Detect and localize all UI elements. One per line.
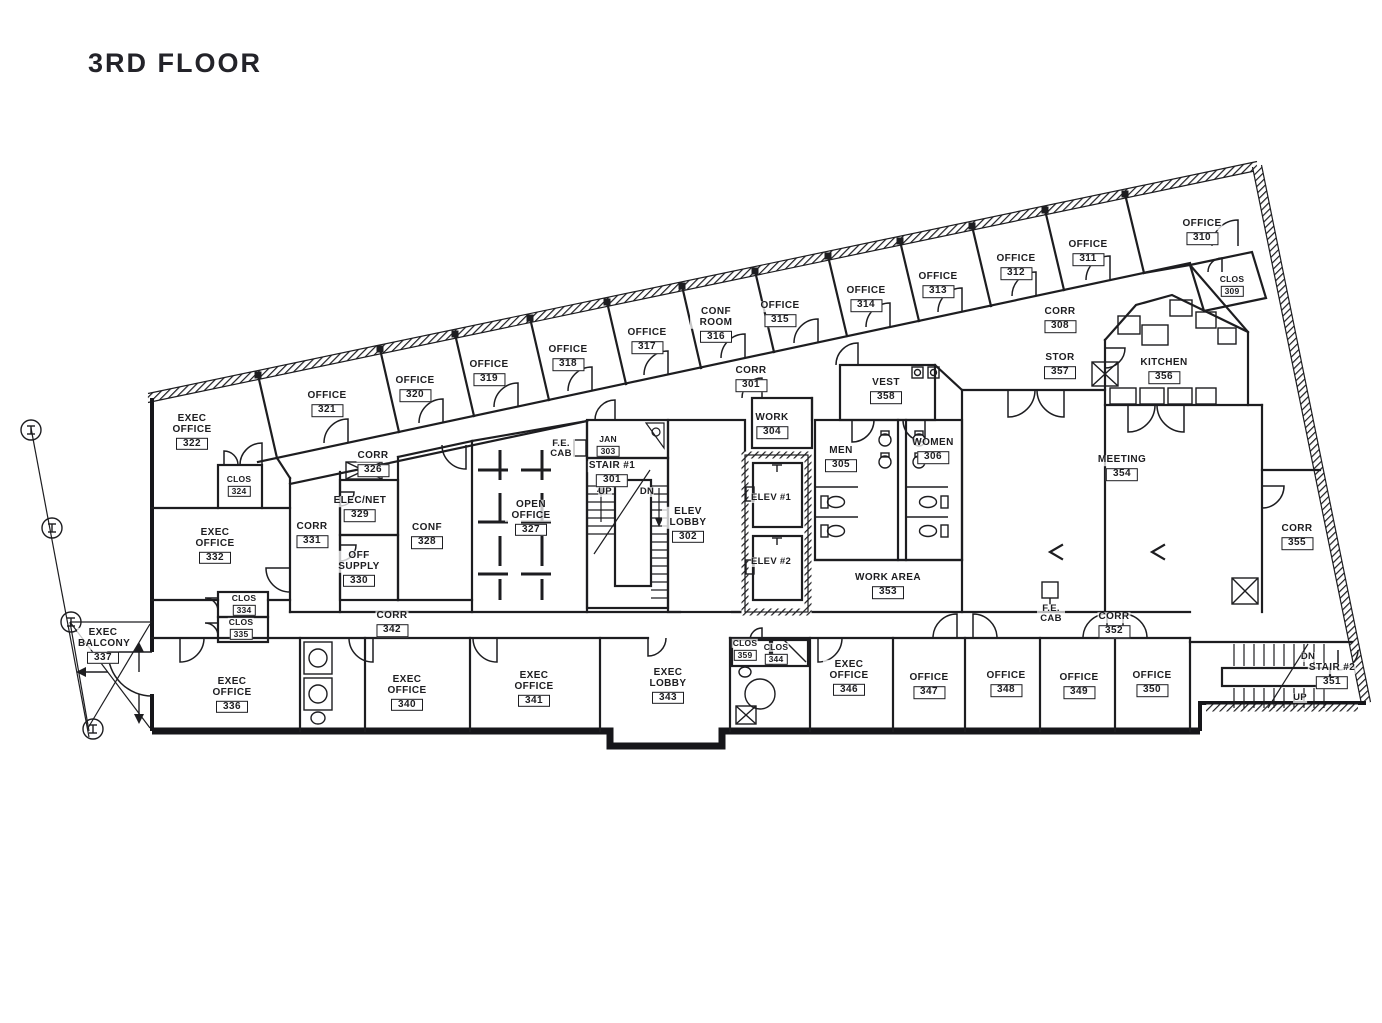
room-number: 306 bbox=[917, 451, 949, 464]
room-number: 343 bbox=[652, 691, 684, 704]
room-label-343: EXEC LOBBY343 bbox=[642, 668, 694, 704]
room-number: 353 bbox=[872, 586, 904, 599]
room-number: 358 bbox=[870, 391, 902, 404]
room-label-319: OFFICE319 bbox=[468, 360, 509, 386]
room-number: 303 bbox=[597, 446, 620, 457]
room-number: 334 bbox=[233, 605, 256, 616]
room-label-348: OFFICE348 bbox=[985, 671, 1026, 697]
room-name: STAIR #2 bbox=[1308, 663, 1356, 674]
room-name: OFFICE bbox=[845, 286, 886, 297]
room-name: CLOS bbox=[228, 618, 254, 627]
room-label-324: CLOS324 bbox=[226, 475, 252, 497]
room-label-310: OFFICE310 bbox=[1181, 219, 1222, 245]
room-name: OFFICE bbox=[547, 345, 588, 356]
door-swings bbox=[108, 220, 1358, 696]
room-label-341: EXEC OFFICE341 bbox=[508, 671, 560, 707]
room-name: CLOS bbox=[763, 643, 789, 652]
room-number: 326 bbox=[357, 464, 389, 477]
room-number: 354 bbox=[1106, 468, 1138, 481]
room-label-315: OFFICE315 bbox=[759, 301, 800, 327]
room-label-311: OFFICE311 bbox=[1067, 240, 1108, 266]
room-label-306: WOMEN306 bbox=[911, 438, 954, 464]
room-name: OFFICE bbox=[1181, 219, 1222, 230]
room-name: EXEC OFFICE bbox=[823, 660, 875, 682]
room-label-357: STOR357 bbox=[1044, 353, 1076, 379]
room-label-347: OFFICE347 bbox=[908, 673, 949, 699]
room-name: ELEC/NET bbox=[333, 496, 388, 507]
room-number: 328 bbox=[411, 536, 443, 549]
room-name: OFFICE bbox=[917, 272, 958, 283]
room-name: EXEC LOBBY bbox=[642, 668, 694, 690]
room-label-316: CONF ROOM316 bbox=[690, 307, 742, 343]
stair1-dn-label: DN bbox=[640, 487, 654, 497]
room-number: 315 bbox=[764, 314, 796, 327]
room-label-337: EXEC BALCONY337 bbox=[77, 628, 129, 664]
room-number: 313 bbox=[922, 285, 954, 298]
room-number: 302 bbox=[672, 530, 704, 543]
fe-cab-label-1: F.E. CAB bbox=[547, 439, 575, 459]
room-number: 324 bbox=[228, 486, 251, 497]
room-number: 344 bbox=[765, 654, 788, 665]
room-label-301-stair: STAIR #1301 bbox=[588, 461, 636, 487]
room-label-335: CLOS335 bbox=[228, 618, 254, 640]
room-name: CORR bbox=[1097, 612, 1130, 623]
room-label-340: EXEC OFFICE340 bbox=[381, 675, 433, 711]
room-label-322: EXEC OFFICE322 bbox=[166, 414, 218, 450]
room-label-332: EXEC OFFICE332 bbox=[189, 528, 241, 564]
room-number: 340 bbox=[391, 698, 423, 711]
room-name: OFFICE bbox=[908, 673, 949, 684]
room-number: 305 bbox=[825, 459, 857, 472]
room-number: 359 bbox=[734, 650, 757, 661]
room-label-318: OFFICE318 bbox=[547, 345, 588, 371]
room-name: OFFICE bbox=[306, 391, 347, 402]
room-name: OFFICE bbox=[985, 671, 1026, 682]
room-label-344: CLOS344 bbox=[763, 643, 789, 665]
room-name: MEETING bbox=[1097, 455, 1147, 466]
room-name: ELEV LOBBY bbox=[662, 507, 714, 529]
stair2-up-label: UP bbox=[1293, 693, 1307, 703]
room-name: VEST bbox=[871, 378, 901, 389]
room-number: 320 bbox=[399, 389, 431, 402]
room-name: EXEC OFFICE bbox=[508, 671, 560, 693]
room-number: 319 bbox=[473, 373, 505, 386]
room-number: 312 bbox=[1000, 267, 1032, 280]
room-label-317: OFFICE317 bbox=[626, 328, 667, 354]
stair-1 bbox=[574, 420, 668, 608]
room-name: CLOS bbox=[226, 475, 252, 484]
room-number: 356 bbox=[1148, 371, 1180, 384]
room-name: EXEC OFFICE bbox=[381, 675, 433, 697]
room-label-330: OFF SUPPLY330 bbox=[333, 551, 385, 587]
room-number: 342 bbox=[376, 624, 408, 637]
room-number: 348 bbox=[990, 684, 1022, 697]
room-label-327: OPEN OFFICE327 bbox=[505, 500, 557, 536]
elevator-2-label: ELEV #2 bbox=[751, 557, 791, 567]
room-name: CORR bbox=[1280, 524, 1313, 535]
room-name: OFFICE bbox=[394, 376, 435, 387]
room-number: 347 bbox=[913, 686, 945, 699]
room-name: CONF bbox=[411, 523, 443, 534]
room-number: 337 bbox=[87, 651, 119, 664]
room-label-354: MEETING354 bbox=[1097, 455, 1147, 481]
room-name: OFFICE bbox=[468, 360, 509, 371]
room-number: 309 bbox=[1221, 286, 1244, 297]
room-number: 327 bbox=[515, 523, 547, 536]
room-name: CORR bbox=[356, 451, 389, 462]
room-number: 335 bbox=[230, 629, 253, 640]
room-number: 351 bbox=[1316, 676, 1348, 689]
room-name: JAN bbox=[598, 435, 618, 444]
room-name: WORK bbox=[754, 413, 789, 424]
room-label-346: EXEC OFFICE346 bbox=[823, 660, 875, 696]
room-number: 318 bbox=[552, 358, 584, 371]
room-name: WORK AREA bbox=[854, 573, 922, 584]
room-name: CONF ROOM bbox=[690, 307, 742, 329]
room-name: OFFICE bbox=[995, 254, 1036, 265]
room-number: 317 bbox=[631, 341, 663, 354]
room-number: 304 bbox=[756, 426, 788, 439]
room-label-353: WORK AREA353 bbox=[854, 573, 922, 599]
room-number: 330 bbox=[343, 574, 375, 587]
room-number: 310 bbox=[1186, 232, 1218, 245]
room-number: 329 bbox=[344, 509, 376, 522]
room-name: CORR bbox=[295, 522, 328, 533]
room-number: 314 bbox=[850, 299, 882, 312]
room-number: 311 bbox=[1072, 253, 1104, 266]
room-label-359: CLOS359 bbox=[732, 639, 758, 661]
room-label-331: CORR331 bbox=[295, 522, 328, 548]
room-label-349: OFFICE349 bbox=[1058, 673, 1099, 699]
room-number: 352 bbox=[1098, 625, 1130, 638]
room-number: 336 bbox=[216, 700, 248, 713]
room-name: EXEC OFFICE bbox=[206, 677, 258, 699]
room-number: 301 bbox=[735, 379, 767, 392]
room-number: 350 bbox=[1136, 684, 1168, 697]
room-number: 341 bbox=[518, 694, 550, 707]
room-label-312: OFFICE312 bbox=[995, 254, 1036, 280]
room-number: 308 bbox=[1044, 320, 1076, 333]
room-name: EXEC OFFICE bbox=[166, 414, 218, 436]
room-label-336: EXEC OFFICE336 bbox=[206, 677, 258, 713]
room-number: 331 bbox=[296, 535, 328, 548]
room-name: CORR bbox=[734, 366, 767, 377]
room-name: OFF SUPPLY bbox=[333, 551, 385, 573]
room-label-334: CLOS334 bbox=[231, 594, 257, 616]
room-name: CLOS bbox=[732, 639, 758, 648]
room-name: CLOS bbox=[231, 594, 257, 603]
room-name: EXEC OFFICE bbox=[189, 528, 241, 550]
room-label-358: VEST358 bbox=[870, 378, 902, 404]
room-label-351: STAIR #2351 bbox=[1308, 663, 1356, 689]
room-name: OPEN OFFICE bbox=[505, 500, 557, 522]
room-label-314: OFFICE314 bbox=[845, 286, 886, 312]
room-label-301-corr: CORR301 bbox=[734, 366, 767, 392]
room-name: CORR bbox=[375, 611, 408, 622]
stair2-dn-label: DN bbox=[1301, 652, 1315, 662]
room-number: 301 bbox=[596, 474, 628, 487]
room-label-308: CORR308 bbox=[1043, 307, 1076, 333]
room-name: CLOS bbox=[1219, 275, 1245, 284]
room-number: 332 bbox=[199, 551, 231, 564]
room-name: OFFICE bbox=[1058, 673, 1099, 684]
room-label-350: OFFICE350 bbox=[1131, 671, 1172, 697]
room-name: OFFICE bbox=[1067, 240, 1108, 251]
room-label-352: CORR352 bbox=[1097, 612, 1130, 638]
room-label-313: OFFICE313 bbox=[917, 272, 958, 298]
room-label-355: CORR355 bbox=[1280, 524, 1313, 550]
floor-plan: 3RD FLOOR bbox=[0, 0, 1382, 1023]
room-name: STOR bbox=[1044, 353, 1075, 364]
room-label-321: OFFICE321 bbox=[306, 391, 347, 417]
room-label-303: JAN303 bbox=[597, 435, 620, 457]
room-name: OFFICE bbox=[759, 301, 800, 312]
room-label-356: KITCHEN356 bbox=[1139, 358, 1188, 384]
stair1-up-label: UP bbox=[598, 487, 612, 497]
room-name: OFFICE bbox=[626, 328, 667, 339]
room-name: WOMEN bbox=[911, 438, 954, 449]
room-number: 322 bbox=[176, 437, 208, 450]
room-name: KITCHEN bbox=[1139, 358, 1188, 369]
room-label-309: CLOS309 bbox=[1219, 275, 1245, 297]
fe-cab-label-2: F.E. CAB bbox=[1037, 604, 1065, 624]
room-name: OFFICE bbox=[1131, 671, 1172, 682]
room-label-326: CORR326 bbox=[356, 451, 389, 477]
room-number: 346 bbox=[833, 683, 865, 696]
room-label-342: CORR342 bbox=[375, 611, 408, 637]
room-number: 349 bbox=[1063, 686, 1095, 699]
room-number: 357 bbox=[1044, 366, 1076, 379]
room-number: 316 bbox=[700, 330, 732, 343]
room-label-320: OFFICE320 bbox=[394, 376, 435, 402]
room-name: EXEC BALCONY bbox=[77, 628, 129, 650]
room-label-305: MEN305 bbox=[825, 446, 857, 472]
room-label-302: ELEV LOBBY302 bbox=[662, 507, 714, 543]
elevator-1-label: ELEV #1 bbox=[751, 493, 791, 503]
room-label-328: CONF328 bbox=[411, 523, 443, 549]
room-label-304: WORK304 bbox=[754, 413, 789, 439]
room-name: STAIR #1 bbox=[588, 461, 636, 472]
room-label-329: ELEC/NET329 bbox=[333, 496, 388, 522]
room-number: 321 bbox=[311, 404, 343, 417]
room-name: MEN bbox=[828, 446, 853, 457]
room-name: CORR bbox=[1043, 307, 1076, 318]
room-number: 355 bbox=[1281, 537, 1313, 550]
